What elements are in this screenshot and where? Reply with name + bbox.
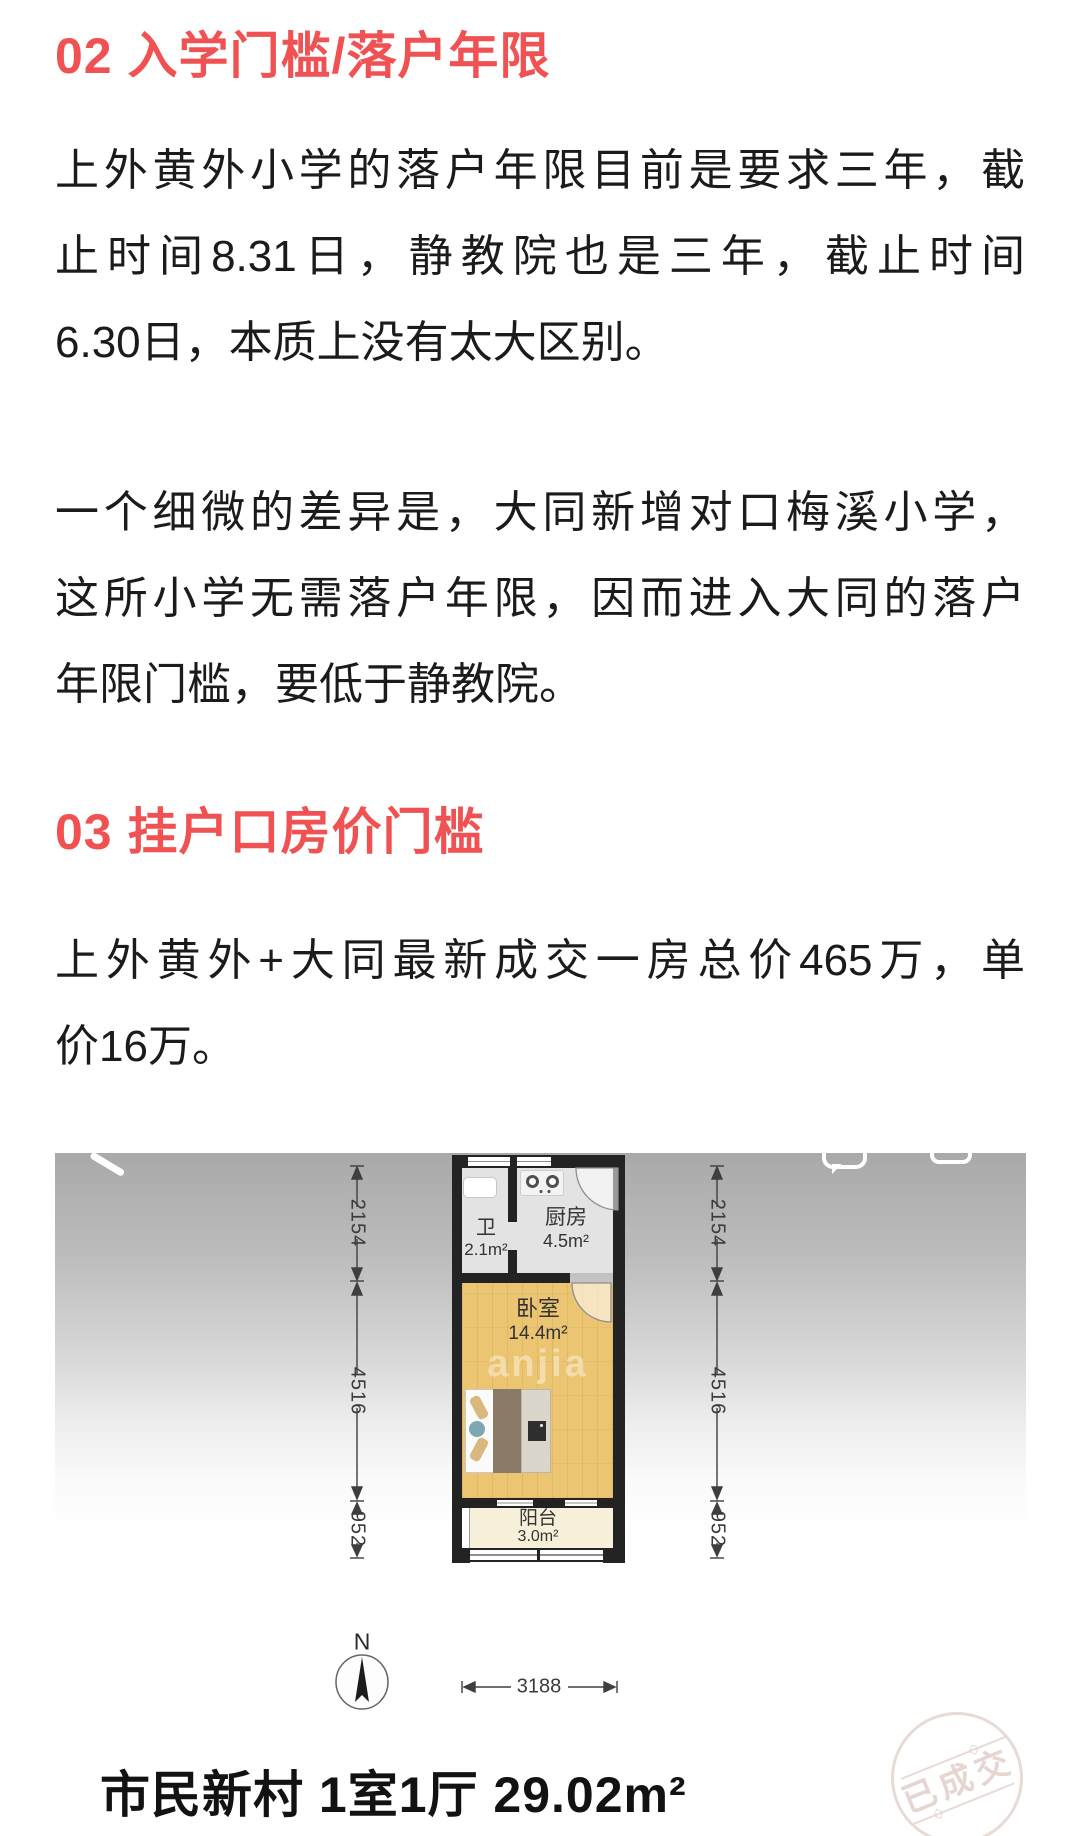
room-name: 卧室 — [508, 1291, 567, 1323]
paragraph-1-line-2: 止时间8.31日，静教院也是三年，截止时间 — [55, 214, 1025, 300]
paragraph-3-line-1: 上外黄外+大同最新成交一房总价465万，单 — [55, 918, 1025, 1004]
dim-bottom-3188: 3188 — [517, 1676, 562, 1699]
sold-stamp-text: 已成交 — [894, 1733, 1021, 1822]
room-label-kitchen: 厨房 4.5m² — [543, 1201, 589, 1252]
room-area: 3.0m² — [518, 1529, 559, 1546]
paragraph-2: 一个细微的差异是，大同新增对口梅溪小学， 这所小学无需落户年限，因而进入大同的落… — [55, 470, 1025, 728]
paragraph-3: 上外黄外+大同最新成交一房总价465万，单 价16万。 — [55, 918, 1025, 1090]
dim-left-2154: 2154 — [346, 1199, 369, 1248]
room-name: 厨房 — [543, 1201, 589, 1231]
paragraph-2-line-2: 这所小学无需落户年限，因而进入大同的落户 — [55, 556, 1025, 642]
bedroom-door-arc — [572, 1283, 611, 1322]
room-name: 卫 — [464, 1211, 507, 1240]
dimension-lines-graphic — [55, 1153, 1026, 1836]
paragraph-2-line-1: 一个细微的差异是，大同新增对口梅溪小学， — [55, 470, 1025, 556]
paragraph-1-line-1: 上外黄外小学的落户年限目前是要求三年，截 — [55, 128, 1025, 214]
compass-north-label: N — [354, 1629, 371, 1656]
dim-right-2154: 2154 — [706, 1199, 729, 1248]
room-label-bedroom: 卧室 14.4m² — [508, 1291, 567, 1345]
paragraph-1: 上外黄外小学的落户年限目前是要求三年，截 止时间8.31日，静教院也是三年，截止… — [55, 128, 1025, 386]
room-area: 2.1m² — [464, 1240, 507, 1260]
listing-caption: 市民新村 1室1厅 29.02m² — [100, 1755, 687, 1827]
room-label-bathroom: 卫 2.1m² — [464, 1211, 507, 1260]
room-name: 阳台 — [518, 1509, 559, 1529]
dim-left-952: 952 — [346, 1511, 369, 1547]
paragraph-2-line-3: 年限门槛，要低于静教院。 — [55, 642, 1025, 728]
dim-left-4516: 4516 — [346, 1367, 369, 1416]
article-page: 02 入学门槛/落户年限 上外黄外小学的落户年限目前是要求三年，截 止时间8.3… — [0, 0, 1080, 1836]
dim-right-4516: 4516 — [706, 1367, 729, 1416]
paragraph-3-line-2: 价16万。 — [55, 1004, 1025, 1090]
floorplan-image[interactable]: anjia — [55, 1153, 1026, 1836]
room-area: 14.4m² — [508, 1323, 567, 1345]
dim-right-952: 952 — [706, 1511, 729, 1547]
sold-stamp: 已成交 — [891, 1712, 1023, 1836]
section-heading-03: 03 挂户口房价门槛 — [55, 792, 1025, 864]
paragraph-1-line-3: 6.30日，本质上没有太大区别。 — [55, 300, 1025, 386]
section-heading-02: 02 入学门槛/落户年限 — [55, 16, 1025, 88]
room-area: 4.5m² — [543, 1231, 589, 1252]
room-label-balcony: 阳台 3.0m² — [518, 1509, 559, 1546]
